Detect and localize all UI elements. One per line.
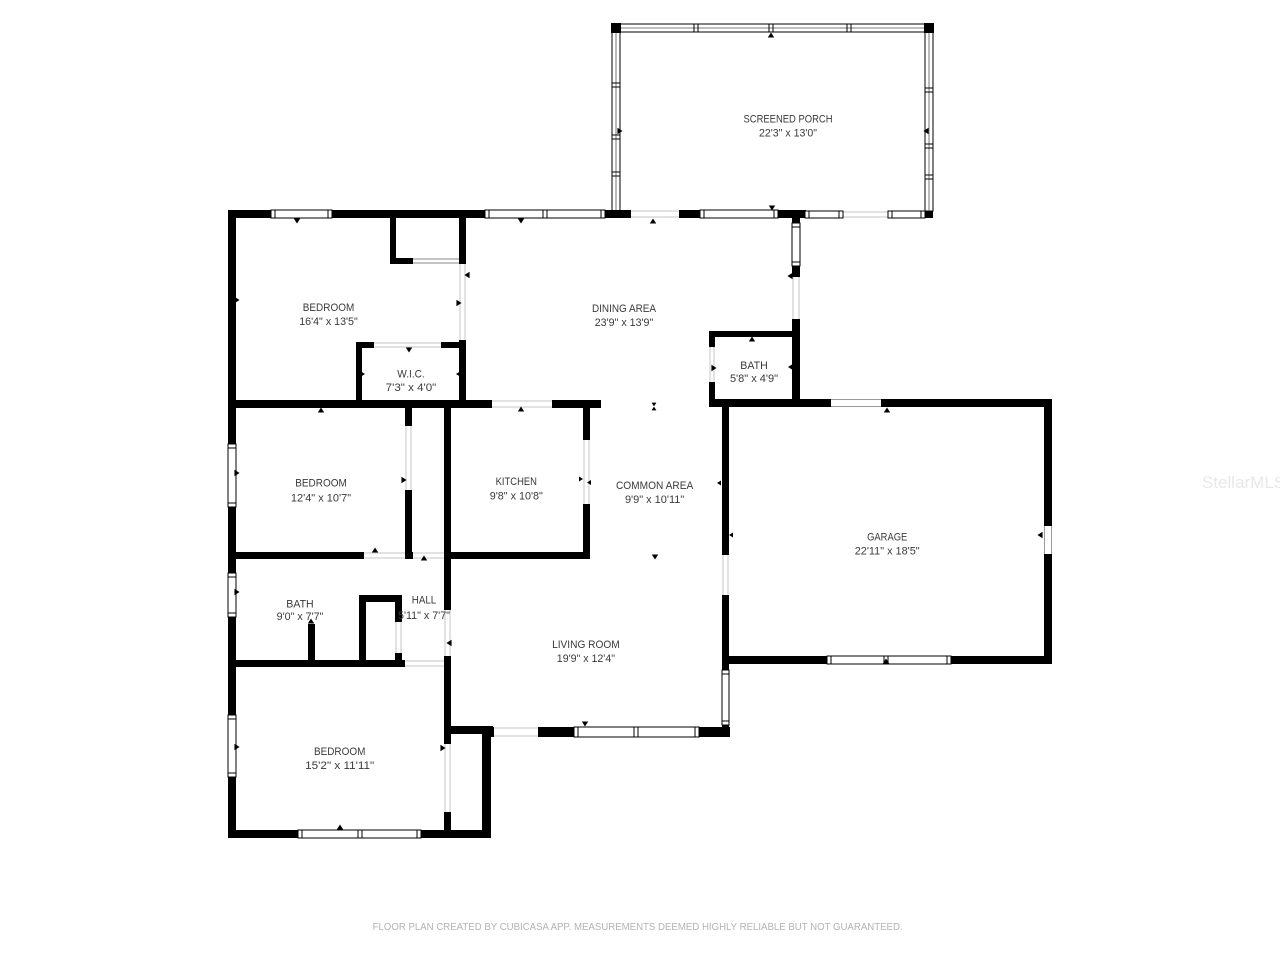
svg-text:23'9" x 13'9": 23'9" x 13'9" [595, 317, 654, 329]
svg-text:22'11" x 18'5": 22'11" x 18'5" [855, 545, 920, 557]
svg-text:9'0" x 7'7": 9'0" x 7'7" [277, 611, 324, 623]
svg-text:HALL: HALL [412, 594, 436, 606]
svg-text:SCREENED PORCH: SCREENED PORCH [744, 114, 833, 126]
svg-text:GARAGE: GARAGE [867, 531, 907, 543]
svg-text:BEDROOM: BEDROOM [303, 302, 355, 314]
svg-text:16'4" x 13'5": 16'4" x 13'5" [299, 316, 358, 328]
svg-text:12'4" x 10'7": 12'4" x 10'7" [291, 493, 351, 505]
svg-text:5'8" x 4'9": 5'8" x 4'9" [730, 373, 778, 385]
svg-text:BATH: BATH [286, 598, 313, 610]
svg-text:FLOOR PLAN CREATED BY CUBICASA: FLOOR PLAN CREATED BY CUBICASA APP. MEAS… [373, 922, 903, 933]
svg-text:KITCHEN: KITCHEN [496, 476, 537, 488]
svg-text:DINING AREA: DINING AREA [592, 303, 657, 315]
svg-text:LIVING ROOM: LIVING ROOM [552, 639, 620, 651]
svg-text:9'8" x 10'8": 9'8" x 10'8" [490, 491, 543, 503]
svg-text:StellarMLS: StellarMLS [1202, 473, 1280, 492]
svg-text:9'9" x 10'11": 9'9" x 10'11" [625, 494, 684, 506]
svg-text:7'3" x 4'0": 7'3" x 4'0" [386, 382, 437, 394]
svg-text:BATH: BATH [740, 360, 768, 372]
svg-text:22'3" x 13'0": 22'3" x 13'0" [759, 128, 817, 140]
svg-text:BEDROOM: BEDROOM [314, 746, 366, 758]
svg-text:15'2" x 11'11": 15'2" x 11'11" [305, 760, 374, 772]
svg-text:W.I.C.: W.I.C. [397, 369, 425, 381]
svg-text:19'9" x 12'4": 19'9" x 12'4" [557, 653, 615, 665]
svg-text:BEDROOM: BEDROOM [295, 477, 347, 489]
svg-text:COMMON AREA: COMMON AREA [616, 480, 694, 492]
svg-text:5'11" x 7'7": 5'11" x 7'7" [398, 610, 450, 622]
